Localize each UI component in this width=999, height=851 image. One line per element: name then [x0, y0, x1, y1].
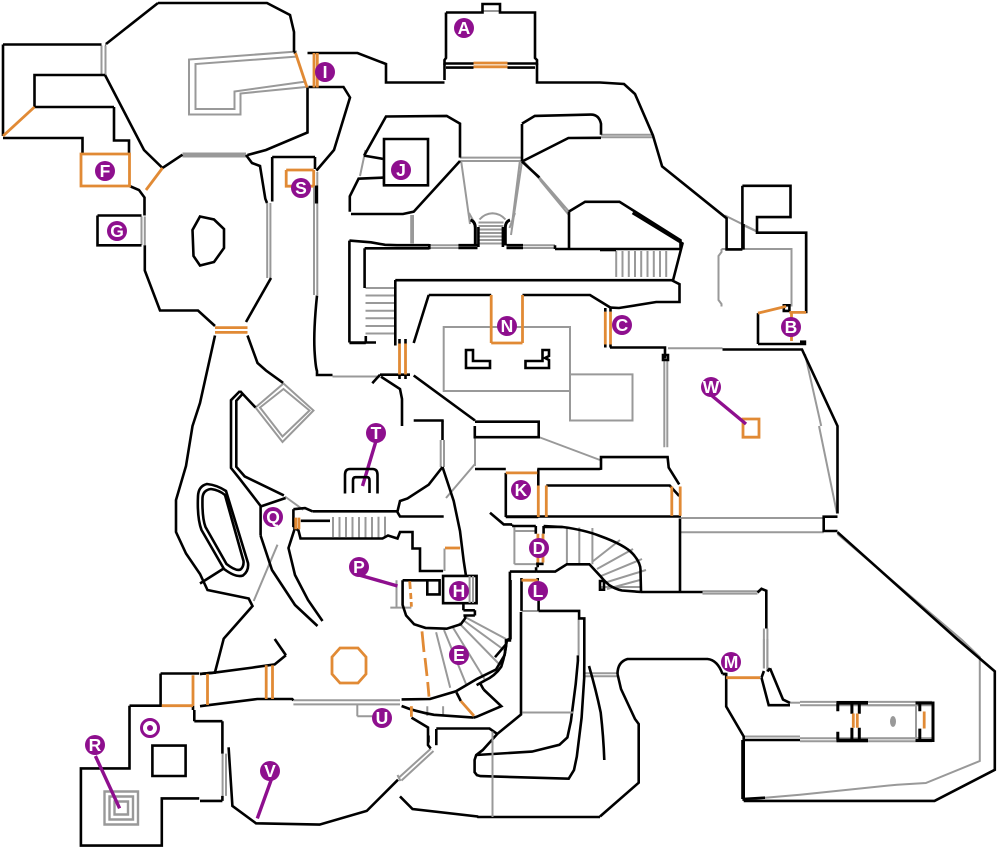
svg-text:G: G	[110, 221, 124, 241]
svg-text:A: A	[458, 18, 471, 38]
svg-text:V: V	[264, 761, 276, 781]
svg-text:Q: Q	[266, 507, 280, 527]
svg-text:D: D	[533, 538, 546, 558]
svg-text:U: U	[376, 708, 389, 728]
svg-text:H: H	[453, 581, 466, 601]
svg-text:I: I	[323, 62, 328, 82]
svg-text:C: C	[616, 315, 629, 335]
svg-text:L: L	[533, 581, 544, 601]
svg-text:T: T	[371, 423, 382, 443]
svg-text:B: B	[785, 317, 798, 337]
svg-text:J: J	[396, 160, 406, 180]
svg-text:E: E	[453, 645, 465, 665]
svg-text:M: M	[724, 652, 739, 672]
svg-text:K: K	[515, 480, 528, 500]
svg-text:P: P	[353, 557, 365, 577]
svg-text:N: N	[501, 316, 514, 336]
svg-text:F: F	[100, 161, 111, 181]
svg-text:S: S	[295, 178, 307, 198]
svg-text:R: R	[89, 735, 102, 755]
svg-text:W: W	[703, 377, 720, 397]
